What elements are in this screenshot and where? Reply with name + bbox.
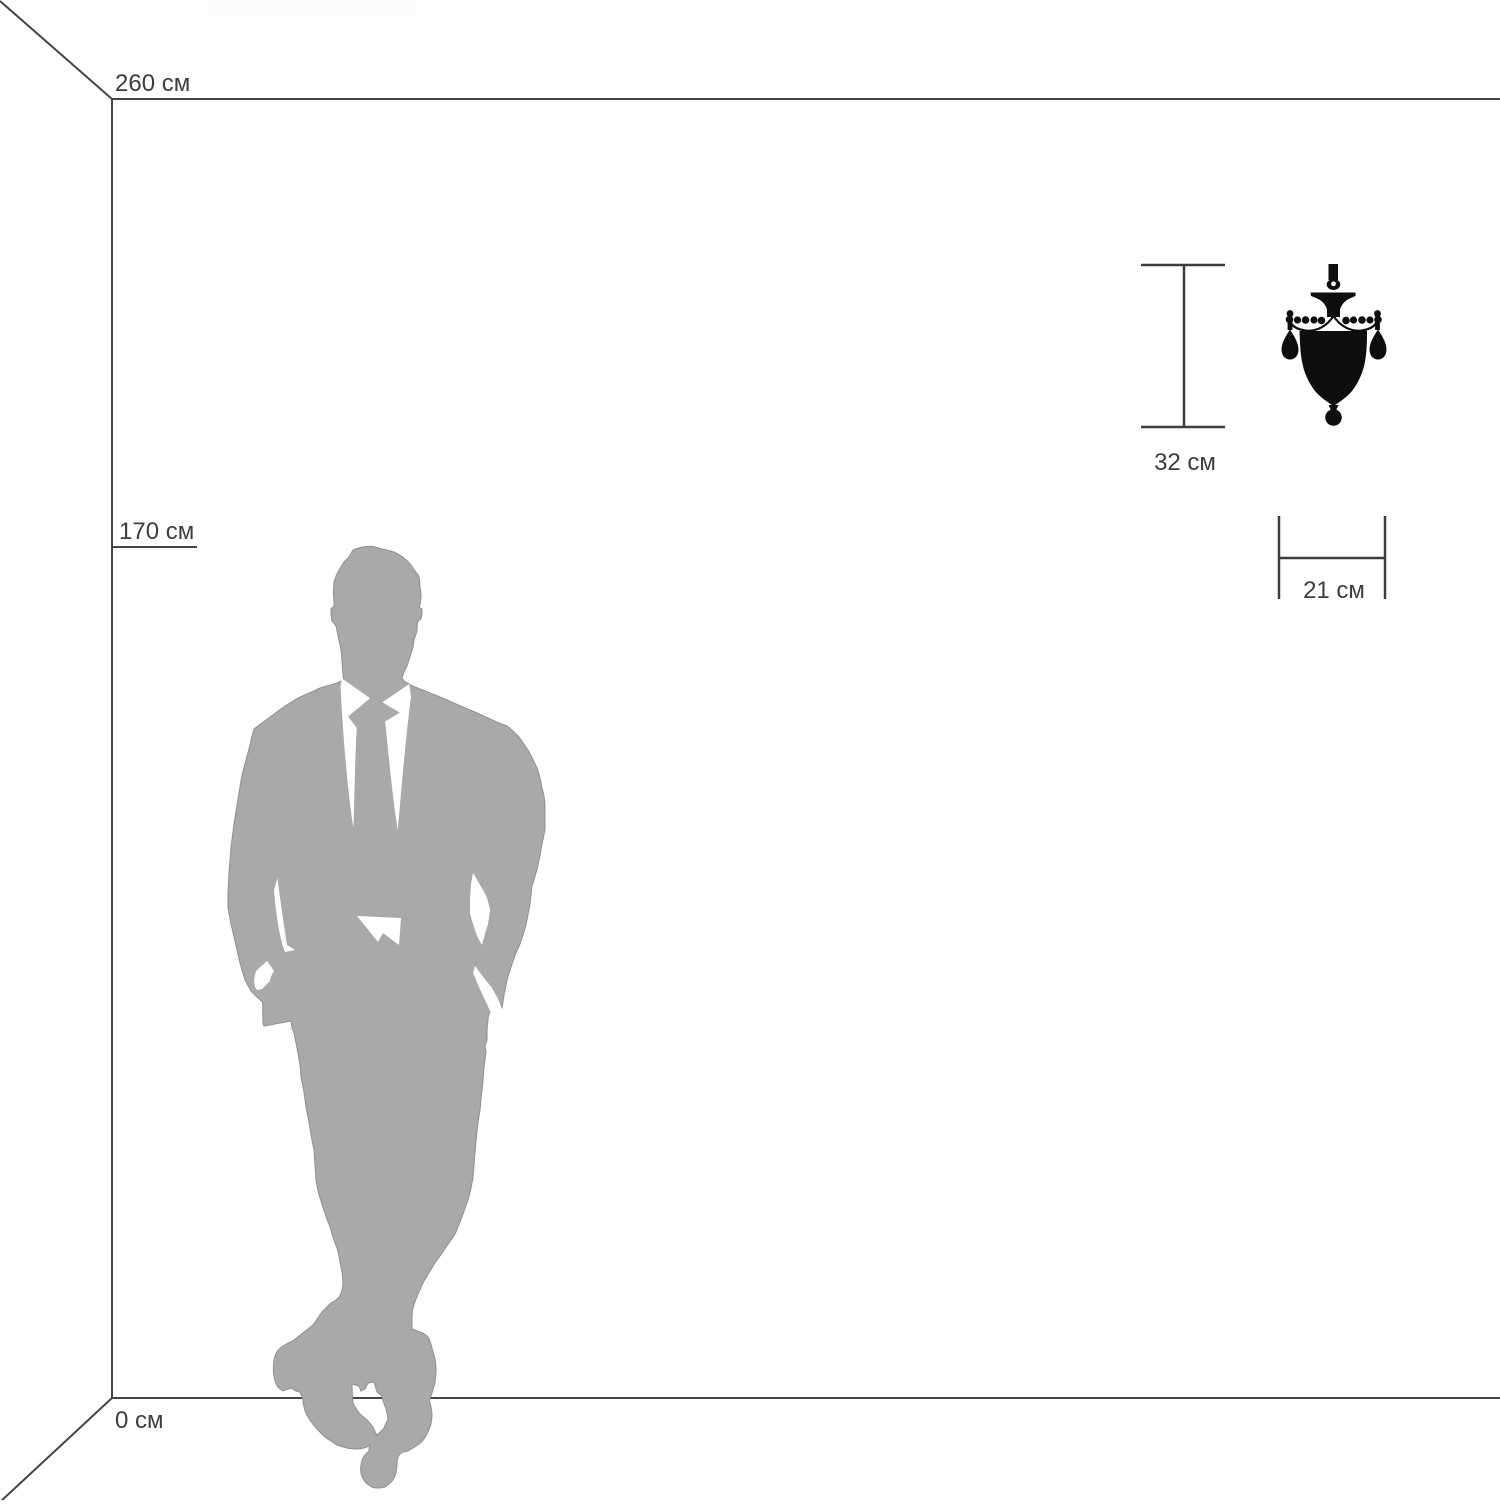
svg-text:260 см: 260 см — [115, 70, 190, 97]
svg-text:0 см: 0 см — [115, 1407, 164, 1434]
svg-text:170 см: 170 см — [119, 518, 194, 545]
svg-text:32 см: 32 см — [1154, 449, 1216, 476]
svg-text:21 см: 21 см — [1303, 577, 1365, 604]
